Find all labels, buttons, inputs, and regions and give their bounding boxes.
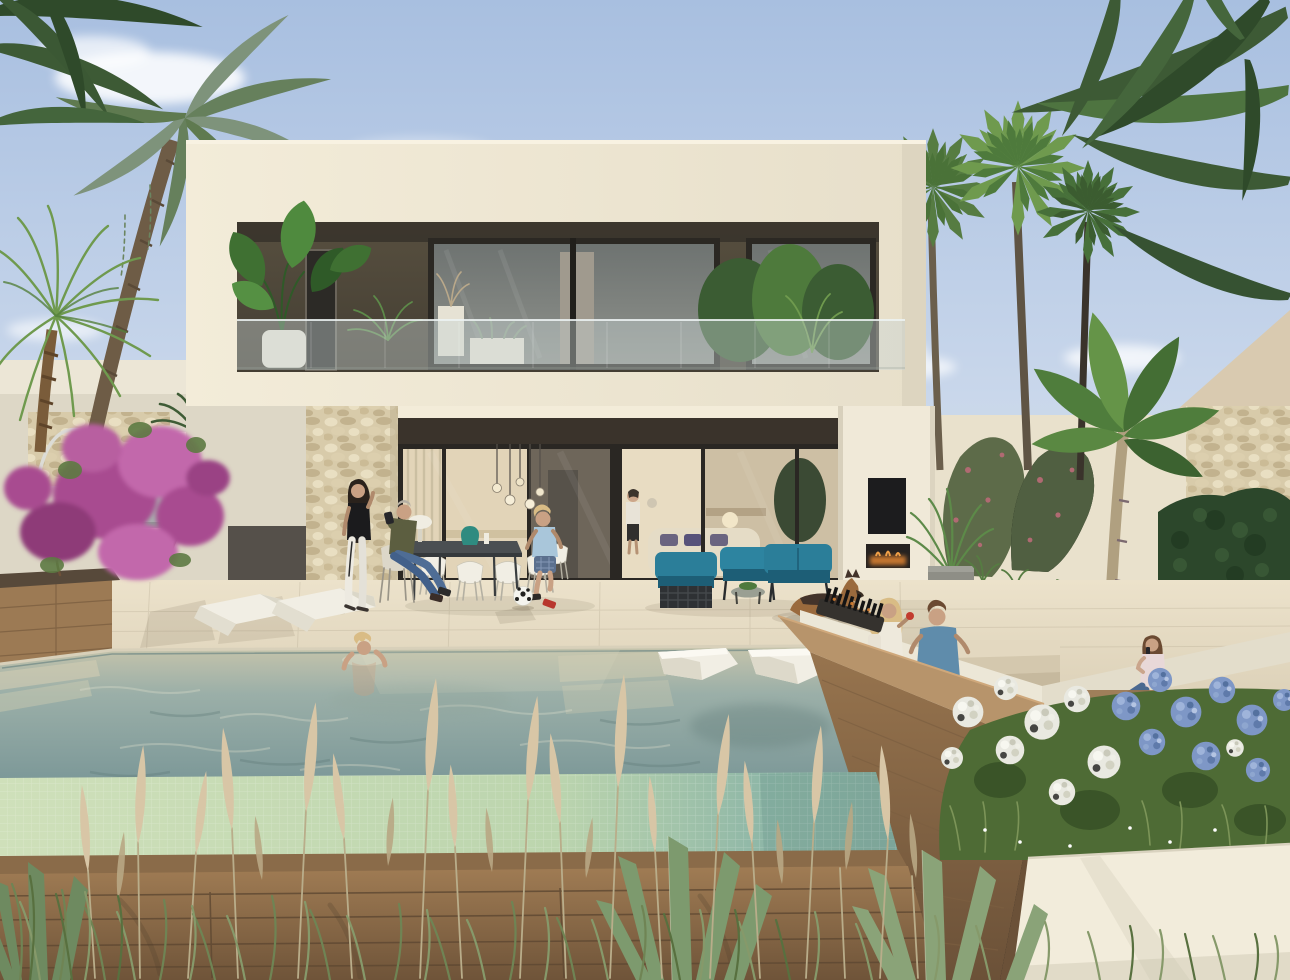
balcony-glass-railing <box>237 320 905 370</box>
red-apple <box>906 612 914 620</box>
outdoor-tv-panel <box>228 526 312 588</box>
upper-floor <box>186 140 926 406</box>
white-planter-wall <box>1012 844 1290 980</box>
villa-render: Modern luxury villa with infinity pool -… <box>0 0 1290 980</box>
soccer-ball <box>512 587 534 611</box>
teal-vase <box>461 526 479 545</box>
wood-deck <box>0 866 940 980</box>
wall-tv <box>868 478 906 534</box>
candle <box>484 533 489 544</box>
soffit <box>398 418 864 444</box>
render-canvas: Modern luxury villa with infinity pool -… <box>0 0 1290 980</box>
teal-armchair-left <box>655 552 717 608</box>
